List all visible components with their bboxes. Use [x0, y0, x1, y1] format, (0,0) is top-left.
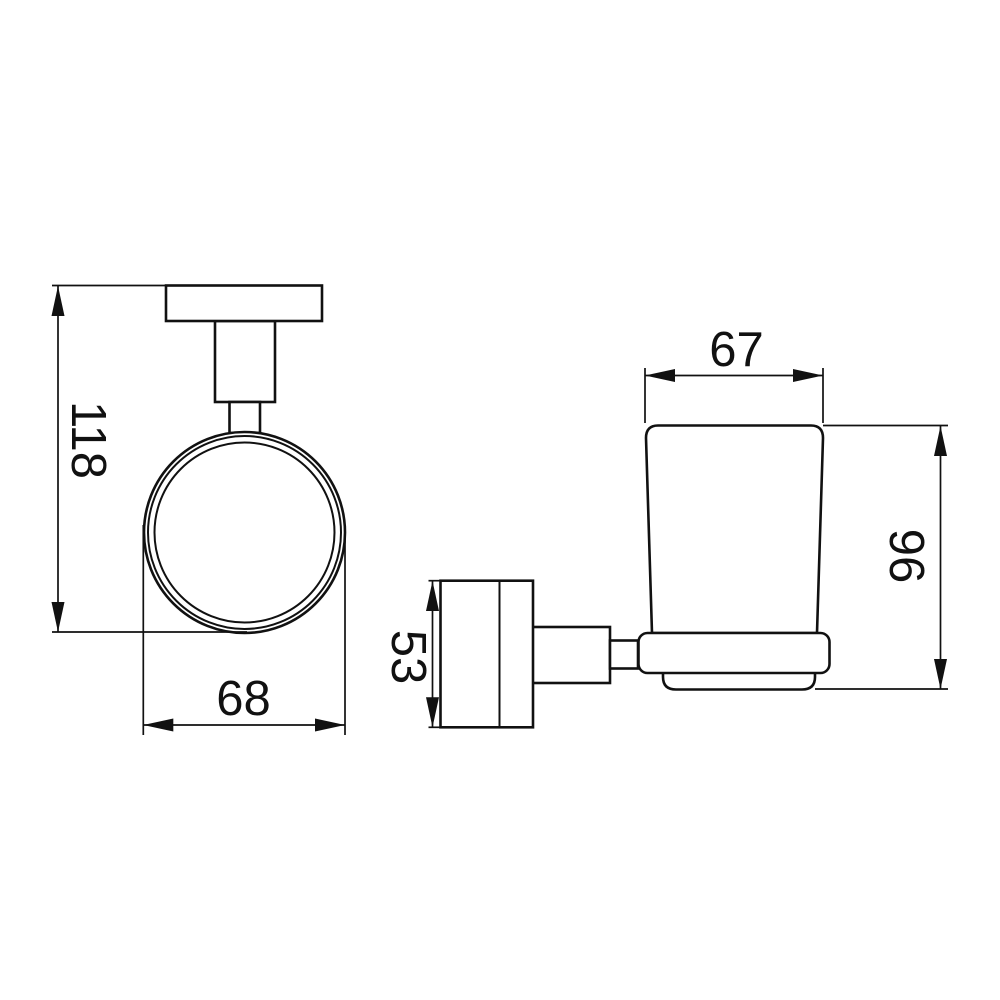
arrowhead-left-icon — [143, 719, 173, 732]
dimension-label-68: 68 — [216, 672, 271, 726]
arrowhead-down-icon — [426, 697, 439, 727]
arrowhead-right-icon — [793, 369, 823, 382]
dimension-label-67: 67 — [709, 323, 764, 377]
front-ring-outer — [144, 432, 345, 633]
dimension-label-96: 96 — [879, 529, 933, 584]
front-stem — [215, 321, 275, 402]
side-connector — [610, 641, 638, 669]
front-connector — [230, 402, 261, 433]
arrowhead-up-icon — [426, 581, 439, 611]
drawing-canvas: 118 68 — [0, 0, 1000, 1000]
arrowhead-right-icon — [315, 719, 345, 732]
dimension-label-118: 118 — [61, 401, 115, 479]
front-view — [144, 286, 345, 634]
side-mounting-plate — [441, 581, 534, 728]
dimension-bracket-height: 53 — [381, 581, 441, 728]
side-view — [441, 426, 830, 728]
arrowhead-left-icon — [645, 369, 675, 382]
arrowhead-down-icon — [52, 602, 65, 632]
arrowhead-up-icon — [934, 426, 947, 456]
side-stem — [533, 627, 611, 683]
front-mounting-plate — [166, 286, 322, 322]
dimension-cup-height: 96 — [815, 426, 948, 690]
side-cup — [646, 426, 823, 634]
dimension-label-53: 53 — [381, 630, 435, 685]
dimension-cup-width: 67 — [645, 323, 823, 423]
side-ring-band — [639, 633, 830, 673]
arrowhead-up-icon — [52, 286, 65, 316]
arrowhead-down-icon — [934, 659, 947, 689]
technical-drawing: 118 68 — [0, 0, 1000, 1000]
